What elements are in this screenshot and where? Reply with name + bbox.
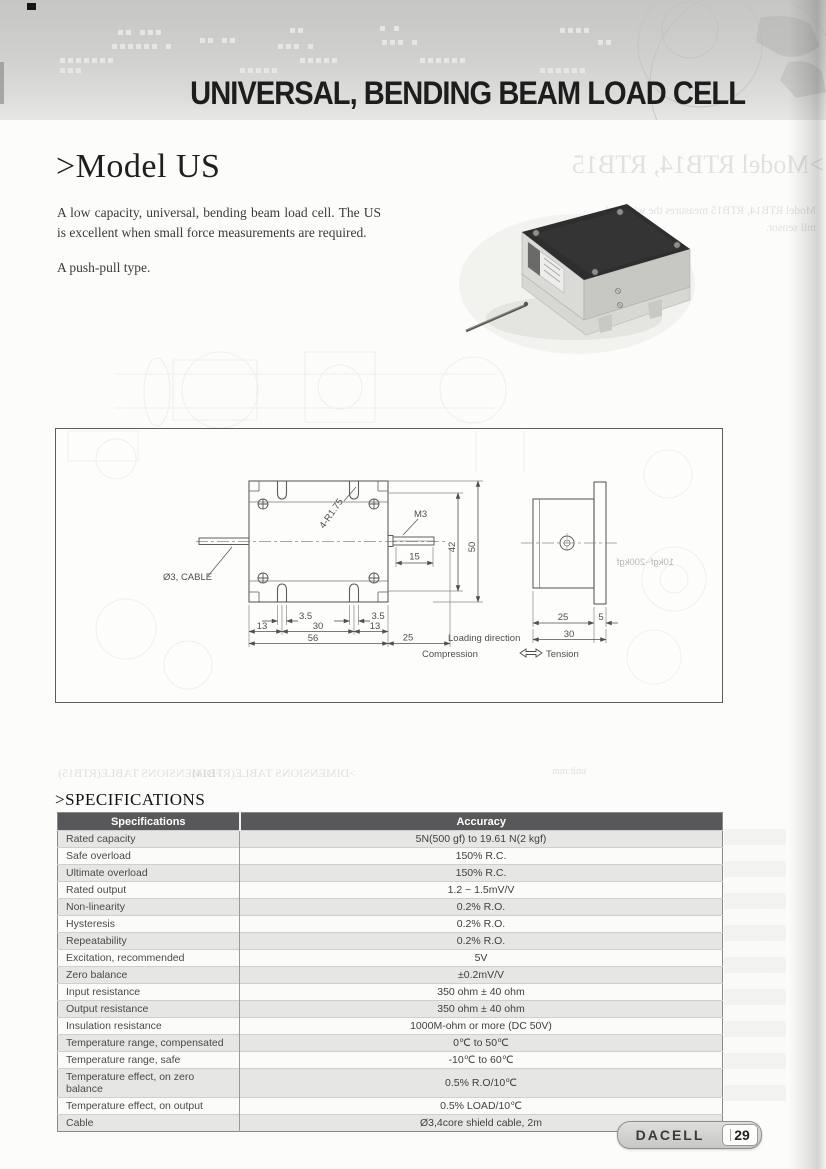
scan-edge-mark [0, 62, 4, 104]
table-row: Ultimate overload150% R.C. [58, 865, 723, 882]
dim-3-5-a: 3.5 [299, 611, 312, 622]
table-row: Temperature range, safe-10℃ to 60℃ [58, 1052, 723, 1069]
cable-label: Ø3, CABLE [163, 572, 212, 583]
ghost-drawing-above [55, 332, 535, 428]
spec-value-cell: 0.5% LOAD/10℃ [240, 1098, 723, 1115]
spec-value-cell: 0.2% R.O. [240, 916, 723, 933]
side-dim-30: 30 [564, 629, 575, 640]
dim-13-a: 13 [257, 621, 268, 632]
spec-name-cell: Safe overload [58, 848, 240, 865]
table-row: Excitation, recommended5V [58, 950, 723, 967]
spec-name-cell: Temperature effect, on output [58, 1098, 240, 1115]
spec-name-cell: Temperature range, safe [58, 1052, 240, 1069]
spec-value-cell: 0℃ to 50℃ [240, 1035, 723, 1052]
page-number-divider [730, 1129, 731, 1141]
table-row: Temperature effect, on output0.5% LOAD/1… [58, 1098, 723, 1115]
table-row: Zero balance±0.2mV/V [58, 967, 723, 984]
scan-shadow [788, 0, 826, 1169]
screw-symbols [258, 499, 379, 583]
spec-name-cell: Excitation, recommended [58, 950, 240, 967]
table-row: Rated capacity5N(500 gf) to 19.61 N(2 kg… [58, 831, 723, 848]
ghost-drawing-shapes [68, 431, 706, 689]
table-row: Rated output1.2 ~ 1.5mV/V [58, 882, 723, 899]
datasheet-page: UNIVERSAL, BENDING BEAM LOAD CELL >Model… [0, 0, 826, 1169]
col-header-accuracy: Accuracy [240, 813, 723, 831]
spec-table: Specifications Accuracy Rated capacity5N… [57, 812, 723, 1132]
page-number: 29 [734, 1127, 750, 1143]
spec-name-cell: Rated output [58, 882, 240, 899]
dim-50: 50 [467, 542, 478, 553]
table-row: Temperature effect, on zero balance0.5% … [58, 1069, 723, 1098]
ghost-table-strip [724, 829, 786, 1101]
ghost-dims-right: >DIMENSIONS TABLE(RTB14) [240, 766, 356, 781]
table-row: Output resistance350 ohm ± 40 ohm [58, 1001, 723, 1018]
brand-logo-text: DACELL [618, 1127, 722, 1143]
spec-name-cell: Hysteresis [58, 916, 240, 933]
spec-value-cell: 0.2% R.O. [240, 899, 723, 916]
spec-value-cell: -10℃ to 60℃ [240, 1052, 723, 1069]
spec-name-cell: Repeatability [58, 933, 240, 950]
spec-name-cell: Non-linearity [58, 899, 240, 916]
model-description-2: A push-pull type. [57, 258, 381, 278]
table-row: Temperature range, compensated0℃ to 50℃ [58, 1035, 723, 1052]
side-dim-25: 25 [558, 612, 569, 623]
brand-badge: DACELL 29 [617, 1121, 762, 1149]
spec-value-cell: 150% R.C. [240, 865, 723, 882]
model-heading: >Model US [56, 148, 220, 186]
drawing-svg: 10kgf~200kgf [56, 429, 722, 702]
dim-25: 25 [403, 633, 414, 644]
ghost-range-text: 10kgf~200kgf [616, 557, 674, 568]
table-row: Repeatability0.2% R.O. [58, 933, 723, 950]
spec-value-cell: 350 ohm ± 40 ohm [240, 1001, 723, 1018]
loading-direction-label: Loading direction [448, 633, 520, 644]
spec-name-cell: Rated capacity [58, 831, 240, 848]
ghost-unit: unit:mm [540, 766, 586, 777]
tension-label: Tension [546, 649, 579, 660]
table-row: Hysteresis0.2% R.O. [58, 916, 723, 933]
compression-label: Compression [422, 649, 478, 660]
col-header-specifications: Specifications [58, 813, 240, 831]
spec-value-cell: 1000M-ohm or more (DC 50V) [240, 1018, 723, 1035]
compression-tension-arrow-icon [520, 649, 542, 657]
spec-value-cell: 0.2% R.O. [240, 933, 723, 950]
table-row: Safe overload150% R.C. [58, 848, 723, 865]
dim-30: 30 [313, 621, 324, 632]
spec-name-cell: Temperature effect, on zero balance [58, 1069, 240, 1098]
table-header-row: Specifications Accuracy [58, 813, 723, 831]
dim-56: 56 [308, 633, 319, 644]
ghost-model-heading: >Model RTB14, RTB15 [548, 150, 824, 180]
spec-value-cell: 5V [240, 950, 723, 967]
model-description: A low capacity, universal, bending beam … [57, 203, 381, 243]
spec-name-cell: Zero balance [58, 967, 240, 984]
table-row: Input resistance350 ohm ± 40 ohm [58, 984, 723, 1001]
dim-42: 42 [447, 542, 458, 553]
spec-heading: >SPECIFICATIONS [55, 790, 205, 810]
spec-value-cell: 1.2 ~ 1.5mV/V [240, 882, 723, 899]
spec-name-cell: Output resistance [58, 1001, 240, 1018]
spec-name-cell: Cable [58, 1115, 240, 1132]
thread-label: M3 [414, 509, 427, 520]
spec-name-cell: Temperature range, compensated [58, 1035, 240, 1052]
table-row: Insulation resistance1000M-ohm or more (… [58, 1018, 723, 1035]
dim-13-b: 13 [370, 621, 381, 632]
spec-value-cell: 150% R.C. [240, 848, 723, 865]
spec-name-cell: Insulation resistance [58, 1018, 240, 1035]
scan-mark [27, 3, 36, 10]
side-dim-5: 5 [598, 612, 603, 623]
spec-value-cell: 0.5% R.O/10℃ [240, 1069, 723, 1098]
spec-value-cell: ±0.2mV/V [240, 967, 723, 984]
spec-table-body: Rated capacity5N(500 gf) to 19.61 N(2 kg… [58, 831, 723, 1132]
spec-name-cell: Ultimate overload [58, 865, 240, 882]
technical-drawing: 10kgf~200kgf [55, 428, 723, 703]
spec-value-cell: 350 ohm ± 40 ohm [240, 984, 723, 1001]
page-title: UNIVERSAL, BENDING BEAM LOAD CELL [190, 76, 745, 113]
dim-15: 15 [409, 552, 420, 563]
header-banner: UNIVERSAL, BENDING BEAM LOAD CELL [0, 0, 826, 120]
page-number-box: 29 [722, 1124, 758, 1146]
ghost-dims-left: >DIMENSIONS TABLE(RTB15) [100, 766, 222, 781]
table-row: Non-linearity0.2% R.O. [58, 899, 723, 916]
spec-value-cell: 5N(500 gf) to 19.61 N(2 kgf) [240, 831, 723, 848]
spec-name-cell: Input resistance [58, 984, 240, 1001]
